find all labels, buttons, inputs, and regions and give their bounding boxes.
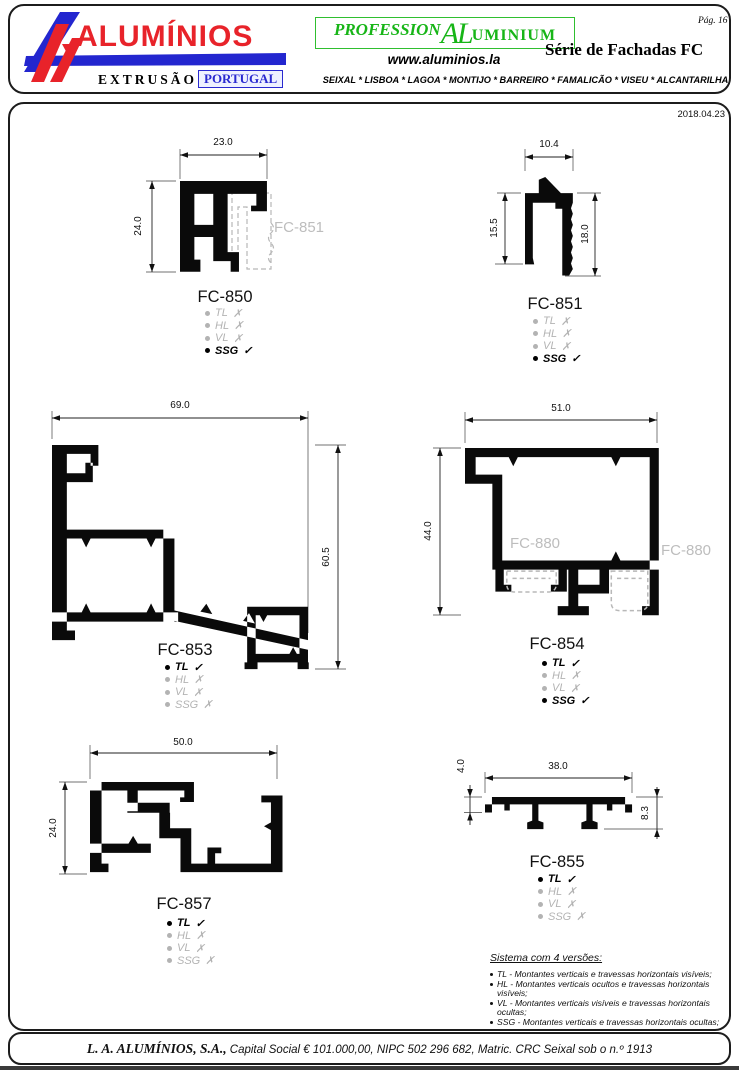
note-item: VL - Montantes verticais visíveis e trav… bbox=[490, 999, 732, 1018]
version-row: HL✗ bbox=[205, 320, 252, 333]
bullet-icon bbox=[167, 921, 172, 926]
version-mark: ✓ bbox=[195, 917, 204, 930]
version-row: TL✓ bbox=[538, 873, 585, 886]
fc-857-versions: TL✓ HL✗ VL✗ SSG✗ bbox=[167, 917, 214, 967]
version-label: HL bbox=[215, 320, 229, 332]
figure-fc-855: 4.0 38.0 8.3 FC-855 TL✓ HL✗ VL✗ SSG✗ bbox=[430, 745, 730, 970]
fc-851-versions: TL✗ HL✗ VL✗ SSG✓ bbox=[533, 315, 580, 365]
bullet-icon bbox=[167, 946, 172, 951]
bullet-icon bbox=[167, 933, 172, 938]
version-row: HL✗ bbox=[542, 670, 589, 683]
version-label: VL bbox=[548, 898, 561, 910]
fc-855-versions: TL✓ HL✗ VL✗ SSG✗ bbox=[538, 873, 585, 923]
version-mark: ✗ bbox=[233, 307, 242, 320]
version-mark: ✓ bbox=[243, 344, 252, 357]
fc-857-name: FC-857 bbox=[124, 895, 244, 914]
fc-853-width-dim: 69.0 bbox=[150, 400, 210, 411]
version-label: VL bbox=[175, 686, 188, 698]
version-label: TL bbox=[215, 307, 228, 319]
version-label: HL bbox=[552, 670, 566, 682]
version-mark: ✓ bbox=[566, 873, 575, 886]
version-label: VL bbox=[215, 332, 228, 344]
bullet-icon bbox=[490, 983, 493, 986]
footer-line: L. A. ALUMÍNIOS, S.A., Capital Social € … bbox=[8, 1040, 731, 1058]
version-row: TL✗ bbox=[205, 307, 252, 320]
bullet-icon bbox=[542, 661, 547, 666]
document-date: 2018.04.23 bbox=[640, 109, 725, 120]
fc-853-height-dim: 60.5 bbox=[321, 537, 333, 577]
fc-857-width-dim: 50.0 bbox=[153, 737, 213, 748]
professional-text-1: PROFESSION bbox=[334, 20, 441, 39]
version-label: HL bbox=[548, 886, 562, 898]
series-title: Série de Fachadas FC bbox=[545, 40, 739, 60]
bullet-icon bbox=[538, 914, 543, 919]
bullet-icon bbox=[205, 336, 210, 341]
fc-854-ghost-label-2: FC-880 bbox=[661, 542, 711, 559]
version-label: SSG bbox=[215, 345, 238, 357]
bullet-icon bbox=[533, 356, 538, 361]
bullet-icon bbox=[165, 690, 170, 695]
version-mark: ✗ bbox=[233, 332, 242, 345]
bullet-icon bbox=[542, 698, 547, 703]
version-mark: ✗ bbox=[571, 669, 580, 682]
fc-854-width-dim: 51.0 bbox=[531, 403, 591, 414]
version-row: VL✗ bbox=[165, 686, 212, 699]
version-row: VL✗ bbox=[538, 898, 585, 911]
version-row: SSG✗ bbox=[165, 699, 212, 712]
fc-850-ghost-label: FC-851 bbox=[274, 219, 324, 236]
note-text: VL - Montantes verticais visíveis e trav… bbox=[497, 999, 732, 1018]
version-mark: ✗ bbox=[194, 673, 203, 686]
version-label: HL bbox=[543, 328, 557, 340]
version-mark: ✗ bbox=[567, 885, 576, 898]
version-mark: ✗ bbox=[570, 682, 579, 695]
version-mark: ✗ bbox=[561, 340, 570, 353]
fc-854-name: FC-854 bbox=[497, 635, 617, 654]
brand-portugal-badge: PORTUGAL bbox=[198, 70, 283, 88]
version-label: SSG bbox=[552, 695, 575, 707]
version-label: VL bbox=[177, 942, 190, 954]
version-row: VL✗ bbox=[542, 682, 589, 695]
brand-extrusao: EXTRUSÃO bbox=[98, 72, 197, 88]
version-label: VL bbox=[543, 340, 556, 352]
version-mark: ✓ bbox=[193, 661, 202, 674]
version-row: HL✗ bbox=[538, 886, 585, 899]
version-label: TL bbox=[543, 315, 556, 327]
bullet-icon bbox=[538, 902, 543, 907]
version-row: SSG✗ bbox=[167, 955, 214, 968]
version-label: TL bbox=[548, 873, 561, 885]
version-mark: ✗ bbox=[195, 942, 204, 955]
bullet-icon bbox=[167, 958, 172, 963]
bullet-icon bbox=[165, 702, 170, 707]
fc-850-height-dim: 24.0 bbox=[133, 206, 145, 246]
version-label: SSG bbox=[175, 699, 198, 711]
figure-fc-857: 50.0 24.0 FC-857 TL✓ HL✗ VL✗ SSG✗ bbox=[45, 735, 345, 975]
version-label: SSG bbox=[177, 955, 200, 967]
locations-line: SEIXAL * LISBOA * LAGOA * MONTIJO * BARR… bbox=[310, 75, 739, 85]
version-row: HL✗ bbox=[167, 930, 214, 943]
version-mark: ✓ bbox=[571, 352, 580, 365]
fc-854-versions: TL✓ HL✗ VL✗ SSG✓ bbox=[542, 657, 589, 707]
version-row: SSG✓ bbox=[205, 345, 252, 358]
professional-aluminium-box: PROFESSIONALUMINIUM bbox=[315, 17, 575, 49]
fc-853-versions: TL✓ HL✗ VL✗ SSG✗ bbox=[165, 661, 212, 711]
version-label: SSG bbox=[548, 911, 571, 923]
header-box: ALUMÍNIOS EXTRUSÃO PORTUGAL PROFESSIONAL… bbox=[8, 4, 731, 94]
fc-851-name: FC-851 bbox=[495, 295, 615, 314]
bullet-icon bbox=[542, 673, 547, 678]
version-row: SSG✓ bbox=[533, 353, 580, 366]
bullet-icon bbox=[533, 319, 538, 324]
version-mark: ✗ bbox=[196, 929, 205, 942]
version-mark: ✗ bbox=[193, 686, 202, 699]
fc-855-height-dim: 8.3 bbox=[640, 793, 652, 833]
version-row: VL✗ bbox=[533, 340, 580, 353]
bullet-icon bbox=[490, 973, 493, 976]
version-mark: ✗ bbox=[205, 954, 214, 967]
version-row: HL✗ bbox=[165, 674, 212, 687]
fc-851-width-dim: 10.4 bbox=[519, 139, 579, 150]
brand-name: ALUMÍNIOS bbox=[76, 20, 253, 54]
fc-854-height-dim: 44.0 bbox=[423, 511, 435, 551]
version-mark: ✗ bbox=[576, 910, 585, 923]
bullet-icon bbox=[205, 323, 210, 328]
figure-fc-853: 69.0 60.5 FC-853 TL✓ HL✗ VL✗ SSG✗ bbox=[35, 395, 360, 713]
bullet-icon bbox=[165, 677, 170, 682]
figure-fc-850: 23.0 24.0 FC-851 FC-850 TL✗ HL✗ VL✗ SSG✓ bbox=[130, 135, 340, 370]
version-label: TL bbox=[175, 661, 188, 673]
fc-853-name: FC-853 bbox=[125, 641, 245, 660]
bullet-icon bbox=[490, 1002, 493, 1005]
bullet-icon bbox=[165, 665, 170, 670]
fc-850-name: FC-850 bbox=[165, 288, 285, 307]
website-url: www.aluminios.la bbox=[315, 52, 573, 67]
version-label: SSG bbox=[543, 353, 566, 365]
figure-fc-854: 51.0 44.0 FC-880 FC-880 FC-854 TL✓ HL✗ V… bbox=[415, 395, 735, 713]
version-row: TL✓ bbox=[165, 661, 212, 674]
fc-851-left-dim: 15.5 bbox=[489, 208, 501, 248]
version-row: VL✗ bbox=[167, 942, 214, 955]
note-text: SSG - Montantes verticais e travessas ho… bbox=[497, 1018, 719, 1028]
version-label: TL bbox=[177, 917, 190, 929]
bottom-strip bbox=[0, 1066, 739, 1070]
version-row: HL✗ bbox=[533, 328, 580, 341]
note-item: SSG - Montantes verticais e travessas ho… bbox=[490, 1018, 732, 1028]
version-label: VL bbox=[552, 682, 565, 694]
fc-850-versions: TL✗ HL✗ VL✗ SSG✓ bbox=[205, 307, 252, 357]
version-row: TL✓ bbox=[542, 657, 589, 670]
version-mark: ✗ bbox=[203, 698, 212, 711]
version-row: TL✓ bbox=[167, 917, 214, 930]
version-row: SSG✓ bbox=[542, 695, 589, 708]
note-text: HL - Montantes verticais ocultos e trave… bbox=[497, 980, 732, 999]
footer-company: L. A. ALUMÍNIOS, S.A., bbox=[87, 1041, 227, 1056]
version-label: HL bbox=[177, 930, 191, 942]
catalog-page: ALUMÍNIOS EXTRUSÃO PORTUGAL PROFESSIONAL… bbox=[0, 0, 739, 1070]
version-mark: ✗ bbox=[562, 327, 571, 340]
fc-855-width-dim: 38.0 bbox=[528, 761, 588, 772]
bullet-icon bbox=[533, 344, 538, 349]
version-mark: ✗ bbox=[566, 898, 575, 911]
page-number: Pág. 16 bbox=[698, 16, 728, 26]
version-mark: ✗ bbox=[234, 319, 243, 332]
bullet-icon bbox=[205, 311, 210, 316]
version-mark: ✓ bbox=[570, 657, 579, 670]
bullet-icon bbox=[490, 1021, 493, 1024]
fc-854-ghost-label-1: FC-880 bbox=[510, 535, 560, 552]
figure-fc-851: 10.4 15.5 18.0 FC-851 TL✗ HL✗ VL✗ SSG✓ bbox=[465, 135, 680, 370]
fc-851-right-dim: 18.0 bbox=[580, 214, 592, 254]
version-row: VL✗ bbox=[205, 332, 252, 345]
fc-855-name: FC-855 bbox=[497, 853, 617, 872]
version-label: HL bbox=[175, 674, 189, 686]
bullet-icon bbox=[542, 686, 547, 691]
footer-details: Capital Social € 101.000,00, NIPC 502 29… bbox=[227, 1044, 652, 1056]
fc-855-topleft-dim: 4.0 bbox=[456, 746, 468, 786]
bullet-icon bbox=[205, 348, 210, 353]
bullet-icon bbox=[538, 877, 543, 882]
version-mark: ✓ bbox=[580, 694, 589, 707]
note-title: Sistema com 4 versões: bbox=[490, 952, 732, 964]
professional-text-2: AL bbox=[441, 17, 472, 50]
version-label: TL bbox=[552, 657, 565, 669]
fc-850-width-dim: 23.0 bbox=[193, 137, 253, 148]
professional-text-3: UMINIUM bbox=[472, 27, 556, 44]
versions-note: Sistema com 4 versões: TL - Montantes ve… bbox=[490, 952, 732, 1028]
fc-857-height-dim: 24.0 bbox=[48, 808, 60, 848]
note-item: HL - Montantes verticais ocultos e trave… bbox=[490, 980, 732, 999]
bullet-icon bbox=[533, 331, 538, 336]
bullet-icon bbox=[538, 889, 543, 894]
version-mark: ✗ bbox=[561, 315, 570, 328]
version-row: TL✗ bbox=[533, 315, 580, 328]
version-row: SSG✗ bbox=[538, 911, 585, 924]
